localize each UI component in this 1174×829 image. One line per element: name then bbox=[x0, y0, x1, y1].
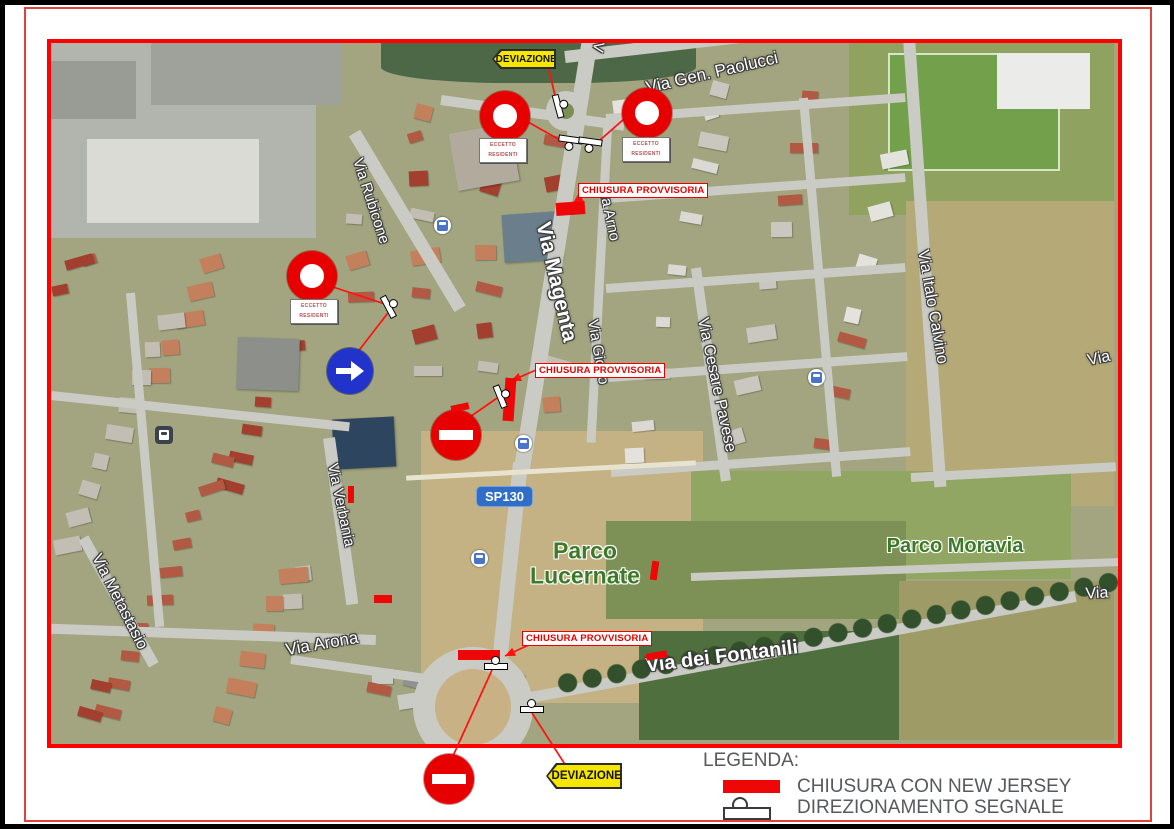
landmark-building bbox=[448, 123, 519, 191]
building-roof bbox=[407, 130, 423, 144]
building-roof bbox=[625, 448, 645, 464]
road bbox=[290, 655, 425, 683]
landmark-building bbox=[236, 337, 300, 391]
new-jersey-bar-symbol bbox=[723, 780, 780, 793]
building-roof bbox=[476, 322, 493, 339]
road bbox=[51, 391, 350, 431]
bus-stop-icon bbox=[471, 550, 488, 567]
building-roof bbox=[51, 283, 69, 296]
building-roof bbox=[656, 317, 670, 327]
bus-window bbox=[476, 555, 483, 558]
building-roof bbox=[65, 507, 91, 527]
satellite-zone bbox=[151, 43, 341, 105]
building-roof bbox=[543, 134, 566, 148]
road bbox=[440, 95, 625, 131]
building-roof bbox=[413, 103, 433, 122]
building-roof bbox=[278, 567, 308, 584]
satellite-zone bbox=[87, 139, 259, 223]
building-roof bbox=[149, 368, 170, 383]
building-roof bbox=[542, 396, 560, 412]
building-roof bbox=[844, 307, 862, 325]
building-roof bbox=[198, 479, 226, 497]
aerial-map bbox=[47, 39, 1122, 748]
bus-window bbox=[813, 374, 820, 377]
legend: LEGENDA: CHIUSURA CON NEW JERSEY DIREZIO… bbox=[703, 750, 1071, 818]
bus-stop-icon bbox=[808, 369, 825, 386]
building-roof bbox=[239, 651, 266, 669]
building-roof bbox=[411, 324, 437, 344]
bus-stop-icon bbox=[434, 217, 451, 234]
building-roof bbox=[412, 287, 431, 299]
bus-window bbox=[439, 222, 446, 225]
building-roof bbox=[145, 342, 161, 358]
building-roof bbox=[679, 211, 702, 225]
legend-row-direction-signal: DIREZIONAMENTO SEGNALE bbox=[723, 797, 1071, 818]
building-roof bbox=[771, 222, 792, 237]
building-roof bbox=[172, 538, 191, 551]
building-roof bbox=[346, 213, 363, 224]
building-roof bbox=[160, 566, 183, 578]
legend-title: LEGENDA: bbox=[703, 750, 1071, 772]
building-roof bbox=[185, 509, 201, 522]
building-roof bbox=[78, 480, 101, 500]
bus-stop-icon bbox=[155, 426, 173, 444]
legend-label-direction-signal: DIREZIONAMENTO SEGNALE bbox=[797, 797, 1064, 819]
building-roof bbox=[414, 366, 442, 376]
building-roof bbox=[212, 706, 232, 725]
building-roof bbox=[92, 453, 110, 471]
satellite-zone bbox=[51, 61, 136, 119]
road bbox=[606, 263, 906, 293]
direction-signal-symbol bbox=[723, 797, 780, 818]
building-roof bbox=[668, 264, 687, 276]
roundabout-island bbox=[558, 103, 574, 119]
road bbox=[47, 623, 376, 645]
building-roof bbox=[199, 253, 223, 273]
building-roof bbox=[409, 171, 429, 187]
building-roof bbox=[345, 250, 369, 270]
building-roof bbox=[64, 253, 94, 270]
road bbox=[799, 98, 841, 477]
building-roof bbox=[475, 281, 503, 297]
building-roof bbox=[709, 80, 729, 99]
building-roof bbox=[266, 596, 283, 611]
building-roof bbox=[226, 677, 257, 697]
building-roof bbox=[475, 245, 496, 260]
building-roof bbox=[837, 331, 867, 348]
roundabout-island bbox=[435, 669, 511, 745]
building-roof bbox=[691, 158, 719, 174]
building-roof bbox=[283, 594, 303, 610]
building-roof bbox=[105, 424, 134, 443]
building-roof bbox=[778, 194, 803, 206]
building-roof bbox=[348, 292, 374, 303]
building-roof bbox=[241, 424, 262, 437]
bus-window bbox=[520, 440, 527, 443]
page: { "frame": {"map_border": "#ff0000", "pa… bbox=[0, 0, 1174, 829]
building-roof bbox=[746, 324, 777, 343]
building-roof bbox=[293, 312, 314, 325]
building-roof bbox=[161, 339, 179, 355]
building-roof bbox=[121, 650, 140, 662]
building-roof bbox=[187, 281, 215, 301]
legend-row-new-jersey: CHIUSURA CON NEW JERSEY bbox=[723, 776, 1071, 797]
building-roof bbox=[53, 536, 82, 556]
building-roof bbox=[734, 375, 762, 395]
building-roof bbox=[255, 396, 272, 407]
building-roof bbox=[698, 131, 729, 151]
bus-window bbox=[161, 432, 167, 435]
building-roof bbox=[477, 361, 498, 374]
legend-label-new-jersey: CHIUSURA CON NEW JERSEY bbox=[797, 776, 1071, 798]
bus-stop-icon bbox=[515, 435, 532, 452]
satellite-zone bbox=[997, 53, 1090, 109]
